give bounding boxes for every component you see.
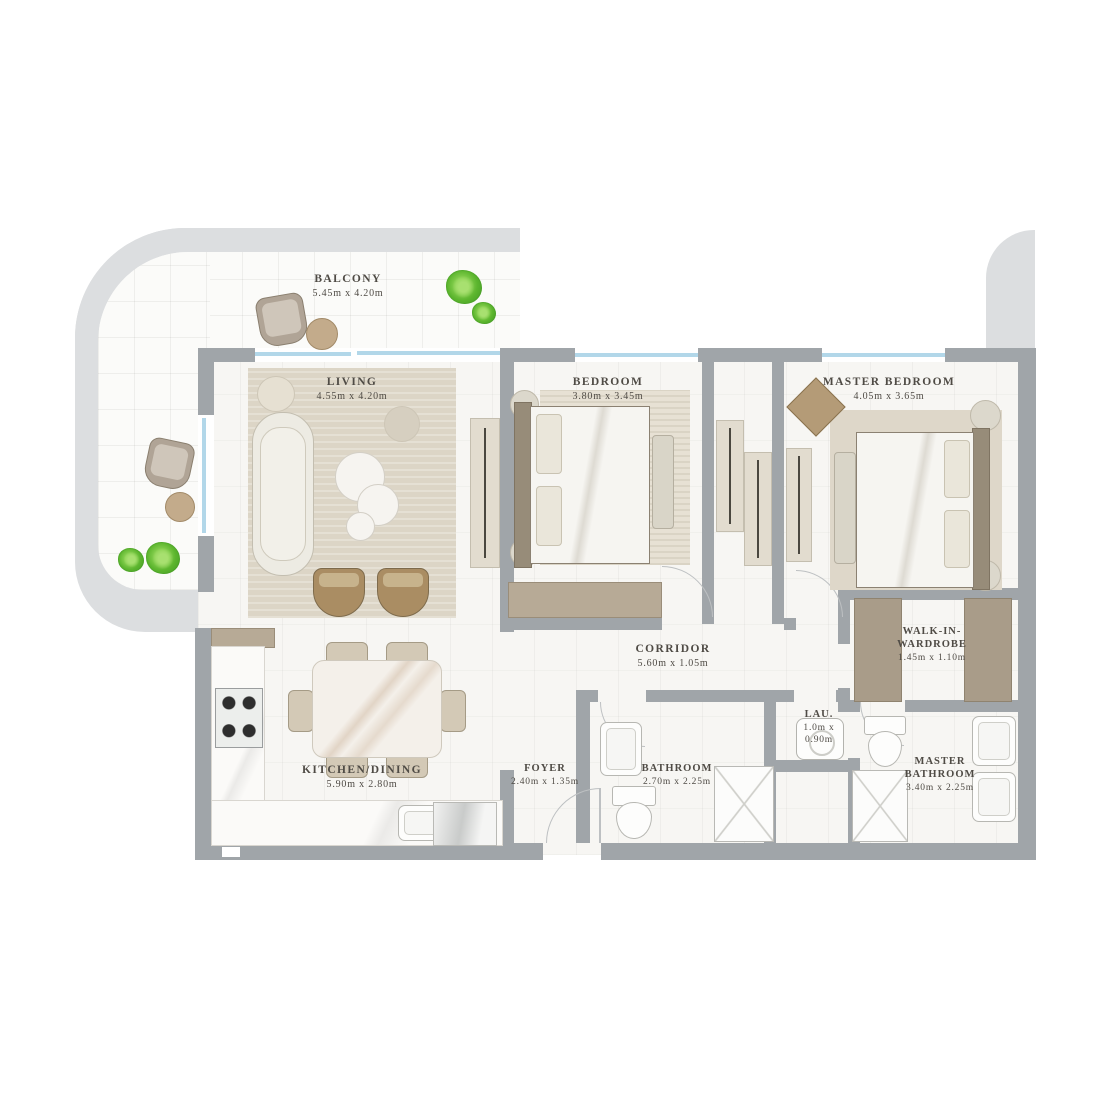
room-dims: 2.70m x 2.25m <box>617 777 737 789</box>
room-dims: 1.0m x 0.90m <box>792 723 846 747</box>
label-balcony: BALCONY 5.45m x 4.20m <box>263 272 433 301</box>
master-window-glass <box>820 353 945 357</box>
sofa-seat <box>260 427 306 561</box>
room-dims: 5.60m x 1.05m <box>598 658 748 671</box>
balcony-floor-left <box>98 252 210 590</box>
room-dims: 5.90m x 2.80m <box>272 779 452 792</box>
room-dims: 2.40m x 1.35m <box>490 777 600 789</box>
wall-laundry-north-b <box>836 690 848 702</box>
room-dims: 4.55m x 4.20m <box>282 391 422 404</box>
kitchen-upper-cabinet <box>211 628 275 648</box>
master-nightstand-top <box>970 400 1001 431</box>
wall-bathroom-north-b <box>646 690 776 702</box>
wall-right-exterior <box>1018 348 1036 860</box>
living-pouf-2 <box>384 406 420 442</box>
label-kitchen-dining: KITCHEN/DINING 5.90m x 2.80m <box>272 763 452 792</box>
wall-top-pier-2 <box>698 348 822 362</box>
room-name: KITCHEN/DINING <box>272 763 452 777</box>
room-name: LIVING <box>282 375 422 389</box>
label-master-bedroom: MASTER BEDROOM 4.05m x 3.65m <box>794 375 984 404</box>
wall-kitchen-left <box>195 628 211 860</box>
living-wardrobe <box>470 418 500 568</box>
wall-bedroom-right <box>702 362 714 624</box>
master-pillow-2 <box>944 510 970 568</box>
master-pillow-1 <box>944 440 970 498</box>
room-name: BATHROOM <box>617 762 737 775</box>
living-side-sill <box>198 413 214 538</box>
wall-bottom-exterior-right <box>601 843 1036 860</box>
balcony-plant-large <box>446 270 482 304</box>
room-name: BALCONY <box>263 272 433 286</box>
label-bathroom: BATHROOM 2.70m x 2.25m <box>617 762 737 789</box>
room-name: LAU. <box>792 708 846 721</box>
label-foyer: FOYER 2.40m x 1.35m <box>490 762 600 789</box>
floor-plan: BALCONY 5.45m x 4.20m LIVING 4.55m x 4.2… <box>0 0 1100 1100</box>
living-sofa <box>252 412 314 576</box>
living-sliding-door-glass-left <box>202 418 206 533</box>
room-dims: 1.45m x 1.10m <box>880 653 984 665</box>
bedroom-pillow-2 <box>536 486 562 546</box>
balcony-chair-cushion <box>149 443 189 481</box>
wall-living-left-pier-top <box>198 355 214 415</box>
master-headboard <box>972 428 990 590</box>
balcony-chair-cushion <box>261 298 302 338</box>
building-silhouette-top-right <box>986 230 1035 355</box>
label-corridor: CORRIDOR 5.60m x 1.05m <box>598 642 748 671</box>
label-laundry: LAU. 1.0m x 0.90m <box>792 708 846 747</box>
balcony-plant-small <box>472 302 496 324</box>
wall-bottom-notch <box>222 847 240 857</box>
label-bedroom: BEDROOM 3.80m x 3.45m <box>533 375 683 404</box>
dining-table <box>312 660 442 758</box>
corridor-wardrobe-1 <box>716 420 744 532</box>
balcony-plant-bottom-2 <box>146 542 180 574</box>
toilet-bowl <box>616 802 652 839</box>
bedroom-window-glass <box>573 353 698 357</box>
balcony-side-table-top <box>306 318 338 350</box>
room-name: MASTER BEDROOM <box>794 375 984 389</box>
balcony-plant-bottom-1 <box>118 548 144 572</box>
wall-master-left <box>772 362 784 624</box>
room-dims: 5.45m x 4.20m <box>263 288 433 301</box>
corridor-wardrobe-2 <box>744 452 772 566</box>
wall-living-left-pier-bottom <box>198 536 214 592</box>
room-name: WALK-IN-WARDROBE <box>880 625 984 651</box>
armchair-cushion <box>319 573 359 587</box>
room-name: FOYER <box>490 762 600 775</box>
wall-laundry-south <box>776 760 848 772</box>
living-sliding-door-glass-1 <box>255 352 351 356</box>
wall-top-pier-1 <box>500 348 575 362</box>
bedroom-pillow-1 <box>536 414 562 474</box>
bedroom-dresser <box>508 582 662 618</box>
room-dims: 3.40m x 2.25m <box>894 783 986 795</box>
dining-chair-3 <box>288 690 314 732</box>
wall-bedroom-south <box>514 618 662 630</box>
label-master-bathroom: MASTER BATHROOM 3.40m x 2.25m <box>894 755 986 795</box>
room-name: MASTER BATHROOM <box>894 755 986 781</box>
label-living: LIVING 4.55m x 4.20m <box>282 375 422 404</box>
master-wardrobe <box>786 448 812 562</box>
room-dims: 3.80m x 3.45m <box>533 391 683 404</box>
stove-icon <box>215 688 263 748</box>
armchair-cushion <box>383 573 423 587</box>
wall-laundry-north-a <box>776 690 794 702</box>
bedroom-bench <box>652 435 674 529</box>
room-dims: 4.05m x 3.65m <box>794 391 984 404</box>
dining-chair-4 <box>440 690 466 732</box>
wall-bathroom-north-a <box>576 690 598 702</box>
coffee-table-small <box>346 512 375 541</box>
bathroom-toilet-icon <box>612 786 654 838</box>
master-bench <box>834 452 856 564</box>
wall-master-south-pier <box>784 618 796 630</box>
balcony-side-table-left <box>165 492 195 522</box>
kitchen-appliance <box>433 802 497 846</box>
entry-door-leaf <box>599 788 601 843</box>
label-walkin-wardrobe: WALK-IN-WARDROBE 1.45m x 1.10m <box>880 625 984 665</box>
room-name: CORRIDOR <box>598 642 748 656</box>
room-name: BEDROOM <box>533 375 683 389</box>
